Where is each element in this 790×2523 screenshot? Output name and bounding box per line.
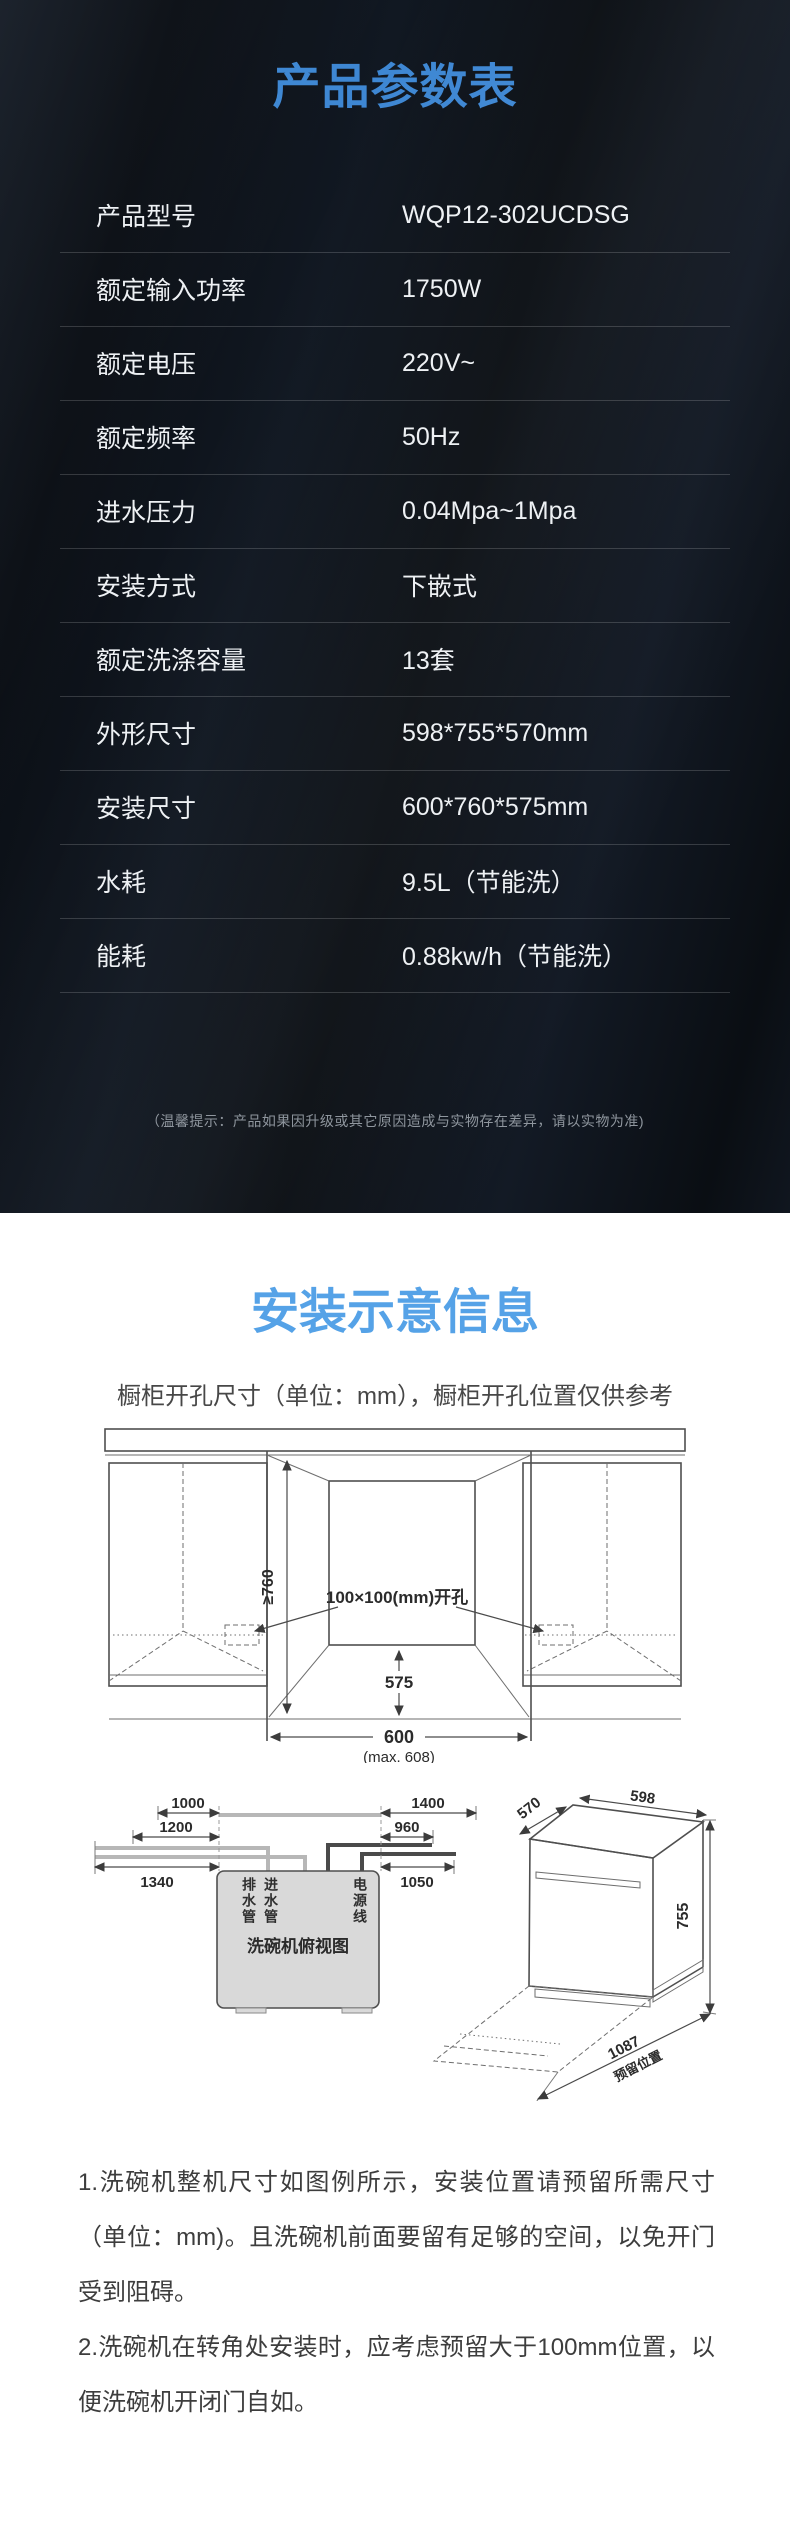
width-dimension: 598 [629,1787,656,1807]
spec-value: 220V~ [402,349,475,378]
spec-value: WQP12-302UCDSG [402,201,630,230]
table-row: 额定电压 220V~ [60,327,730,401]
table-row: 能耗 0.88kw/h（节能洗） [60,919,730,993]
install-subtitle: 橱柜开孔尺寸（单位：mm），橱柜开孔位置仅供参考 [0,1376,790,1411]
spec-label: 额定电压 [96,345,402,381]
spec-label: 安装尺寸 [96,789,402,825]
install-diagrams: 100×100(mm)开孔 ≥760 575 600 (max. 608) [0,1411,790,2141]
dim-960: 960 [394,1819,419,1836]
spec-value: 0.04Mpa~1Mpa [402,497,576,526]
install-notes: 1.洗碗机整机尺寸如图例所示，安装位置请预留所需尺寸（单位：mm)。且洗碗机前面… [78,2155,715,2430]
spec-label: 额定洗涤容量 [96,641,402,677]
table-row: 额定输入功率 1750W [60,253,730,327]
door-handle [536,1872,640,1888]
install-section: 安装示意信息 橱柜开孔尺寸（单位：mm），橱柜开孔位置仅供参考 [0,1213,790,2523]
spec-label: 产品型号 [96,197,402,233]
table-row: 进水压力 0.04Mpa~1Mpa [60,475,730,549]
cabinet-cutout-diagram: 100×100(mm)开孔 ≥760 575 600 (max. 608) [95,1423,695,1763]
niche-width-dimension: 600 [384,1727,414,1747]
spec-label: 能耗 [96,937,402,973]
spec-label: 进水压力 [96,493,402,529]
spec-section: 产品参数表 产品型号 WQP12-302UCDSG 额定输入功率 1750W 额… [0,0,790,1213]
depth-dimension: 570 [514,1794,544,1823]
topview-caption: 洗碗机俯视图 [247,1936,349,1956]
foot [236,2008,266,2013]
right-cabinet [523,1463,681,1686]
spec-value: 600*760*575mm [402,793,588,822]
dim-1340: 1340 [140,1874,173,1891]
spec-value: 13套 [402,641,455,677]
install-note-2: 2.洗碗机在转角处安装时，应考虑预留大于100mm位置，以便洗碗机开闭门自如。 [78,2320,715,2430]
spec-label: 额定频率 [96,419,402,455]
spec-label: 水耗 [96,863,402,899]
cutout-dimension-label: 100×100(mm)开孔 [326,1588,468,1607]
spec-label: 安装方式 [96,567,402,603]
dim-1000: 1000 [171,1796,204,1812]
spec-label: 额定输入功率 [96,271,402,307]
niche-height-dimension: ≥760 [260,1569,277,1605]
drain-hose-label: 排水管 [242,1877,256,1925]
table-row: 安装尺寸 600*760*575mm [60,771,730,845]
power-cord-label: 电源线 [353,1877,367,1925]
table-row: 外形尺寸 598*755*570mm [60,697,730,771]
spec-table: 产品型号 WQP12-302UCDSG 额定输入功率 1750W 额定电压 22… [60,179,730,993]
install-note-1: 1.洗碗机整机尺寸如图例所示，安装位置请预留所需尺寸（单位：mm)。且洗碗机前面… [78,2155,715,2320]
table-row: 额定洗涤容量 13套 [60,623,730,697]
spec-value: 1750W [402,275,481,304]
spec-label: 外形尺寸 [96,715,402,751]
perspective-diagram: 570 598 755 1087 预留位置 [420,1779,745,2101]
spec-value: 0.88kw/h（节能洗） [402,937,627,973]
dim-1200: 1200 [159,1819,192,1836]
niche-width-max-dimension: (max. 608) [363,1749,435,1763]
table-row: 水耗 9.5L（节能洗） [60,845,730,919]
spec-disclaimer-note: （温馨提示：产品如果因升级或其它原因造成与实物存在差异，请以实物为准) [0,1111,790,1131]
spec-value: 50Hz [402,423,460,452]
inlet-hose [95,1857,305,1871]
spec-value: 598*755*570mm [402,719,588,748]
height-dimension: 755 [675,1902,692,1929]
foot [342,2008,372,2013]
spec-value: 9.5L（节能洗） [402,863,576,899]
table-row: 安装方式 下嵌式 [60,549,730,623]
spec-value: 下嵌式 [402,567,477,603]
niche-depth-dimension: 575 [385,1673,413,1692]
product-detail-page: 产品参数表 产品型号 WQP12-302UCDSG 额定输入功率 1750W 额… [0,0,790,2523]
spec-section-title: 产品参数表 [0,0,790,115]
countertop [105,1429,685,1451]
table-row: 额定频率 50Hz [60,401,730,475]
install-section-title: 安装示意信息 [0,1213,790,1340]
left-cabinet [109,1463,267,1686]
inlet-hose-label: 进水管 [264,1877,278,1925]
table-row: 产品型号 WQP12-302UCDSG [60,179,730,253]
